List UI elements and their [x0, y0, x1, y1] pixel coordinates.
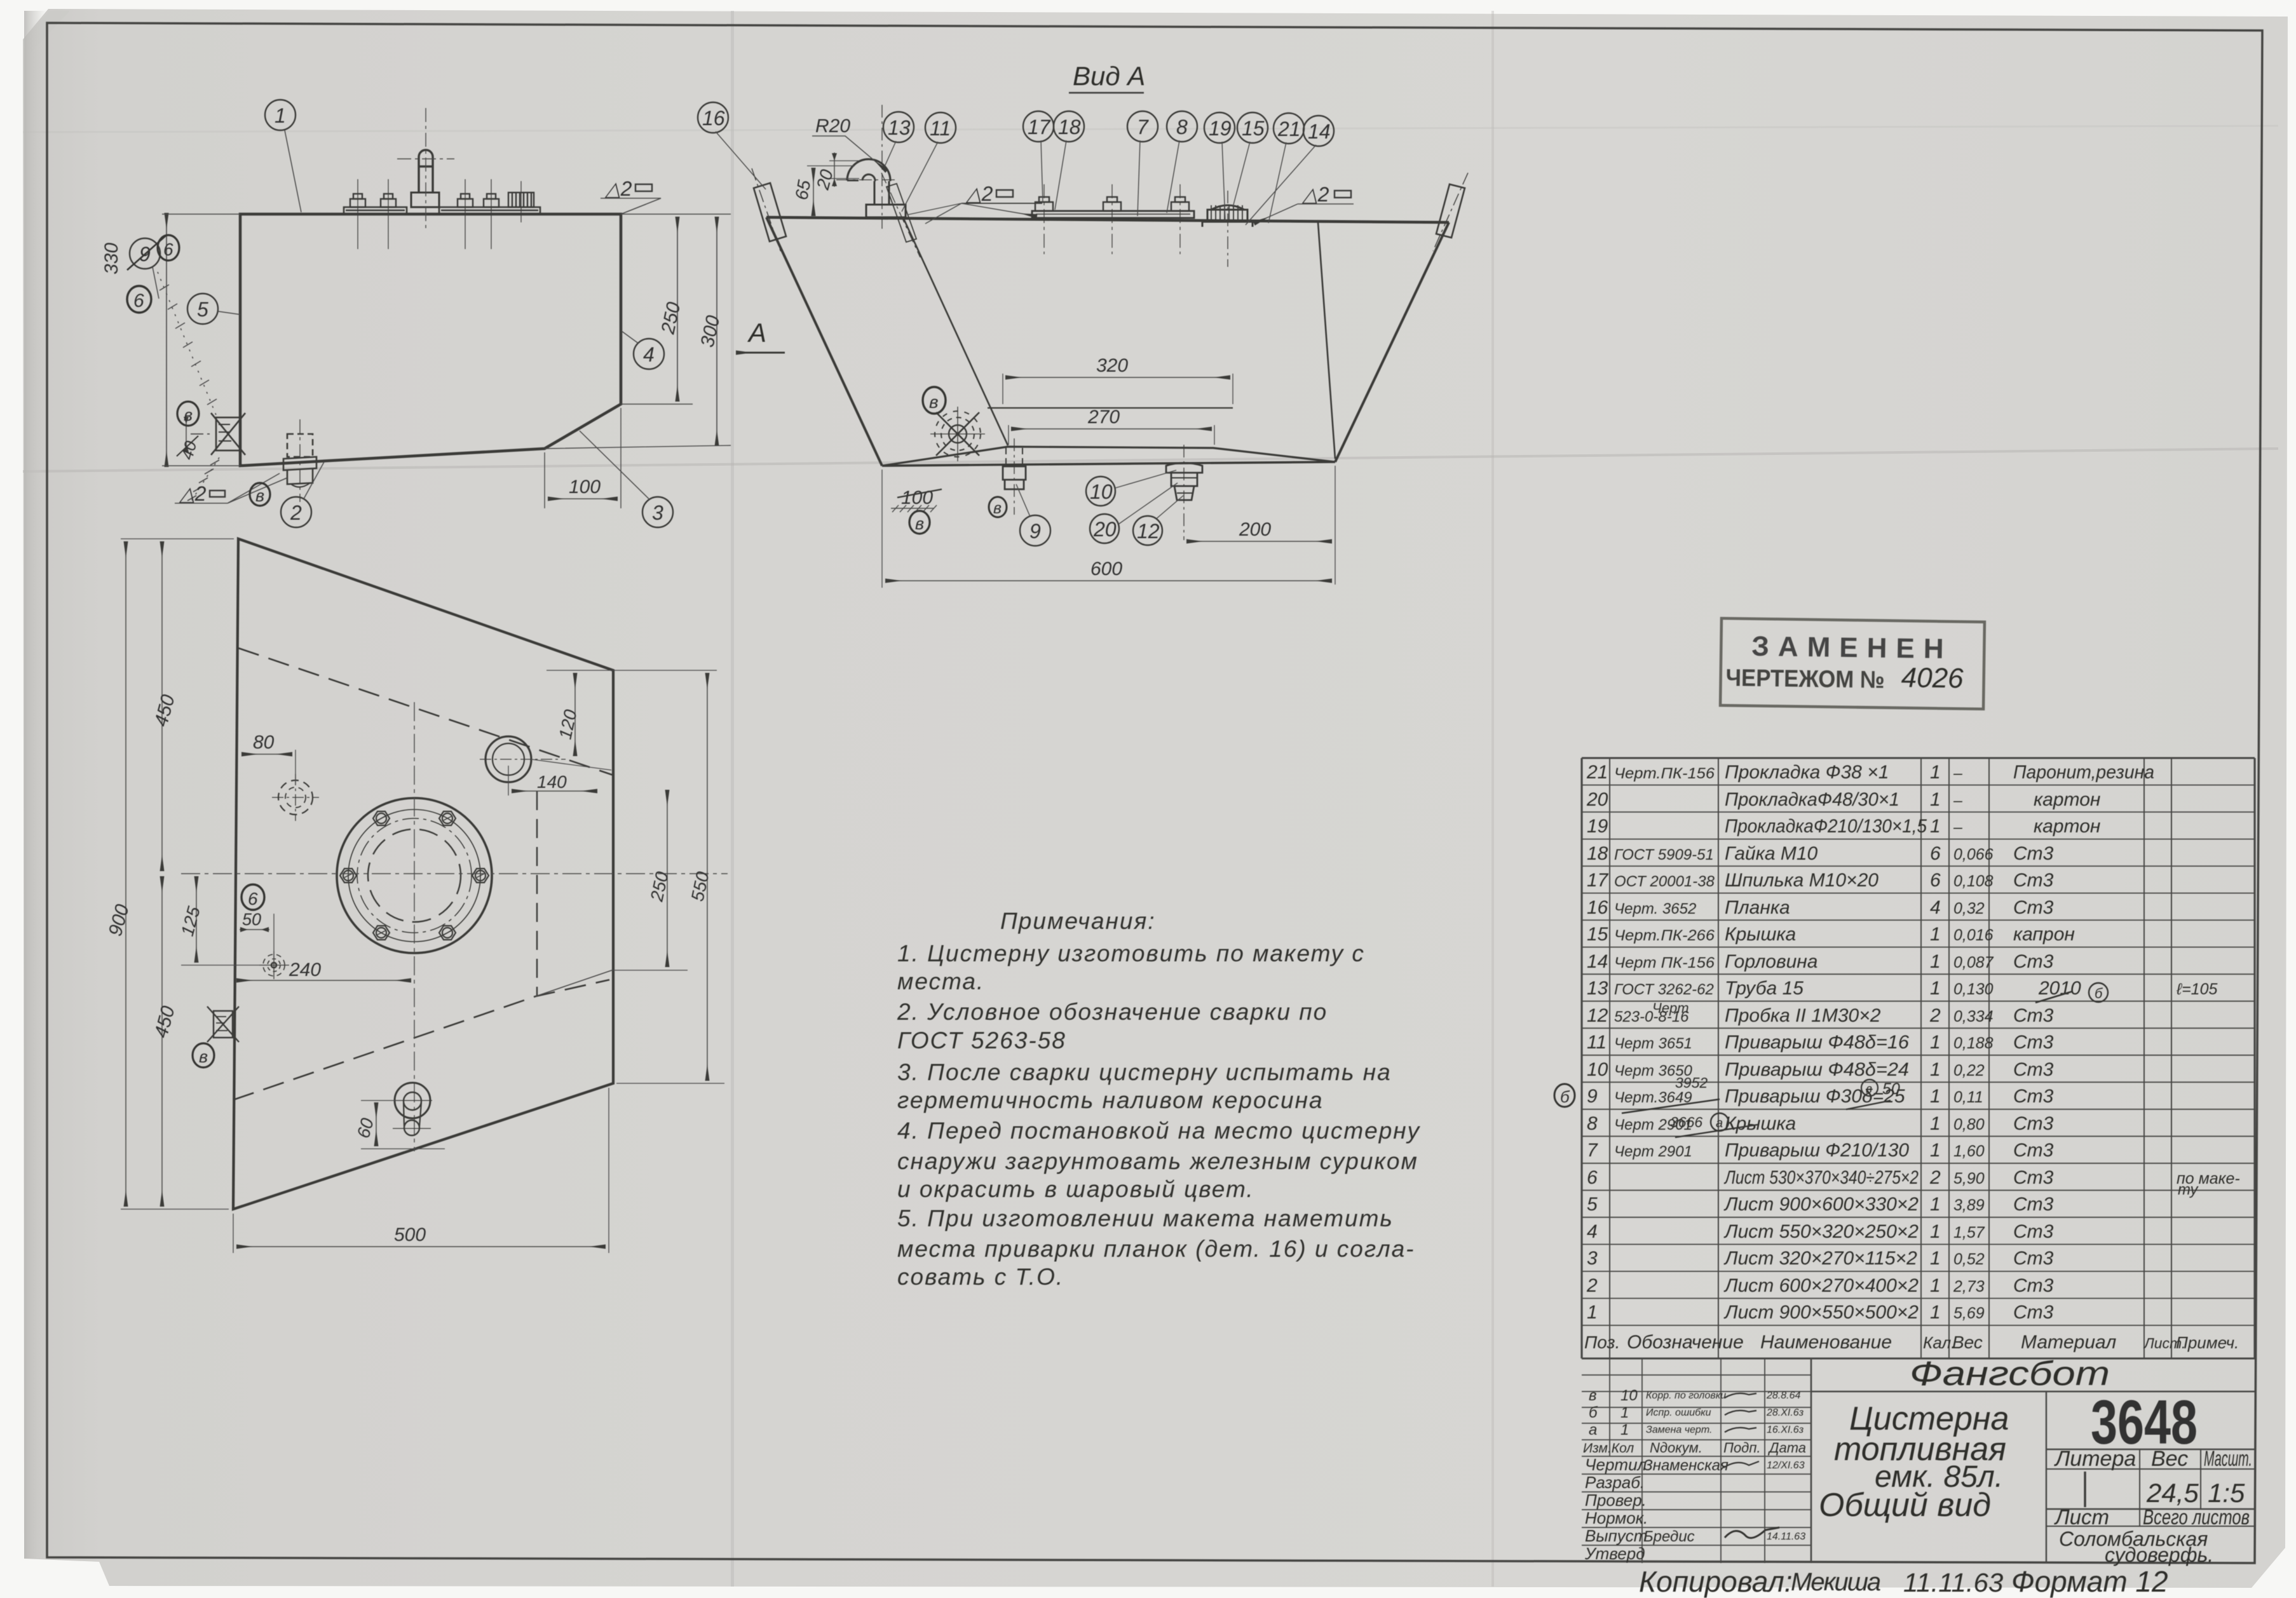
- svg-text:Ст3: Ст3: [2013, 1221, 2054, 1242]
- svg-text:△2: △2: [1301, 183, 1329, 206]
- svg-text:20: 20: [1586, 789, 1608, 810]
- svg-text:Корр. по головки: Корр. по головки: [1646, 1390, 1726, 1401]
- svg-text:Паронит,резина: Паронит,резина: [2013, 762, 2154, 783]
- svg-text:17: 17: [1028, 116, 1051, 139]
- svg-text:320: 320: [1096, 355, 1128, 376]
- svg-text:21: 21: [1586, 762, 1608, 783]
- svg-text:Лист 550×320×250×2: Лист 550×320×250×2: [1723, 1221, 1919, 1242]
- svg-text:Изм.Кол: Изм.Кол: [1583, 1441, 1634, 1456]
- svg-text:а: а: [1589, 1421, 1597, 1439]
- svg-text:Нормок.: Нормок.: [1585, 1508, 1648, 1527]
- svg-text:14.11.63: 14.11.63: [1767, 1531, 1805, 1542]
- svg-text:1: 1: [1930, 762, 1941, 783]
- svg-text:80: 80: [253, 732, 275, 753]
- svg-text:2: 2: [1929, 1005, 1941, 1026]
- svg-text:R20: R20: [815, 116, 850, 137]
- svg-text:Лист 530×370×340÷275×2: Лист 530×370×340÷275×2: [1723, 1167, 1919, 1188]
- svg-text:Испр. ошибки: Испр. ошибки: [1646, 1407, 1711, 1418]
- svg-text:Ст3: Ст3: [2013, 1167, 2054, 1188]
- svg-text:A: A: [747, 318, 766, 348]
- svg-text:1: 1: [1930, 1221, 1941, 1242]
- svg-text:10: 10: [1620, 1387, 1638, 1404]
- svg-text:7: 7: [1587, 1140, 1598, 1161]
- svg-text:Черт ПК-156: Черт ПК-156: [1614, 954, 1715, 972]
- svg-text:6: 6: [248, 889, 258, 909]
- svg-text:Пробка II 1М30×2: Пробка II 1М30×2: [1725, 1005, 1881, 1026]
- svg-text:2. Условное обозначение сварки: 2. Условное обозначение сварки по: [897, 999, 1328, 1025]
- svg-text:Всего листов: Всего листов: [2143, 1505, 2250, 1529]
- svg-text:Поз.: Поз.: [1584, 1332, 1620, 1352]
- svg-text:8: 8: [1587, 1113, 1598, 1134]
- svg-text:1: 1: [1930, 924, 1941, 945]
- svg-text:△2: △2: [965, 182, 993, 205]
- svg-text:Черт.3649: Черт.3649: [1614, 1089, 1692, 1106]
- svg-text:1: 1: [1930, 789, 1941, 810]
- svg-text:1: 1: [1930, 1140, 1941, 1161]
- svg-text:1: 1: [1930, 1032, 1941, 1053]
- svg-text:Ст3: Ст3: [2013, 897, 2054, 918]
- svg-text:Разраб.: Разраб.: [1585, 1473, 1645, 1492]
- svg-text:4026: 4026: [1901, 662, 1964, 694]
- svg-text:Бредис: Бредис: [1643, 1528, 1695, 1545]
- svg-text:Гайка М10: Гайка М10: [1725, 843, 1818, 864]
- svg-text:6: 6: [133, 290, 144, 311]
- svg-text:в: в: [1589, 1387, 1597, 1404]
- svg-text:Формат 12: Формат 12: [2011, 1565, 2168, 1598]
- svg-text:–: –: [1953, 818, 1963, 836]
- svg-text:28.XI.6з: 28.XI.6з: [1766, 1407, 1804, 1418]
- svg-text:2: 2: [1929, 1167, 1941, 1188]
- svg-text:2: 2: [1586, 1275, 1598, 1296]
- svg-text:герметичность наливом керосина: герметичность наливом керосина: [897, 1087, 1324, 1113]
- svg-text:Шпилька М10×20: Шпилька М10×20: [1725, 870, 1878, 891]
- svg-text:Лист 900×600×330×2: Лист 900×600×330×2: [1723, 1194, 1919, 1215]
- svg-text:места.: места.: [897, 968, 984, 994]
- svg-text:Масшт.: Масшт.: [2204, 1447, 2252, 1471]
- svg-text:7: 7: [1137, 116, 1149, 139]
- svg-text:Подп.: Подп.: [1723, 1440, 1761, 1456]
- svg-text:6: 6: [1930, 843, 1941, 864]
- svg-text:б: б: [2095, 985, 2103, 1001]
- svg-text:Черт.ПК-156: Черт.ПК-156: [1614, 765, 1715, 782]
- svg-text:1: 1: [1930, 978, 1941, 999]
- svg-text:50: 50: [1882, 1080, 1900, 1098]
- svg-text:12/XI.63: 12/XI.63: [1767, 1460, 1805, 1471]
- svg-text:12: 12: [1137, 520, 1160, 543]
- svg-text:11.11.63: 11.11.63: [1903, 1568, 2003, 1597]
- svg-text:Дата: Дата: [1767, 1440, 1806, 1456]
- svg-text:Черт: Черт: [1652, 1000, 1689, 1016]
- svg-text:16: 16: [702, 107, 725, 130]
- svg-text:Общий вид: Общий вид: [1819, 1487, 1991, 1524]
- svg-text:Приварыш Ф210/130: Приварыш Ф210/130: [1725, 1140, 1909, 1161]
- svg-text:1: 1: [1930, 1113, 1941, 1134]
- svg-text:Наименование: Наименование: [1760, 1332, 1892, 1353]
- svg-text:1: 1: [1930, 951, 1941, 972]
- svg-text:140: 140: [537, 772, 567, 792]
- svg-text:в: в: [993, 499, 1002, 517]
- svg-text:8: 8: [1176, 116, 1188, 139]
- svg-text:270: 270: [1087, 407, 1120, 428]
- svg-text:Выпуст: Выпуст: [1585, 1526, 1647, 1545]
- svg-text:13: 13: [888, 116, 911, 139]
- svg-text:Ст3: Ст3: [2013, 1113, 2054, 1134]
- svg-text:1: 1: [275, 104, 286, 127]
- svg-text:Утверд: Утверд: [1584, 1544, 1645, 1563]
- svg-text:Ст3: Ст3: [2013, 843, 2054, 864]
- svg-text:500: 500: [394, 1224, 426, 1245]
- svg-text:Черт 3651: Черт 3651: [1614, 1035, 1692, 1052]
- svg-text:1,60: 1,60: [1953, 1142, 1985, 1160]
- svg-text:11: 11: [1587, 1032, 1607, 1053]
- svg-text:Ст3: Ст3: [2013, 1248, 2054, 1269]
- svg-text:4: 4: [643, 343, 655, 366]
- svg-text:0,087: 0,087: [1953, 954, 1994, 972]
- svg-text:5,69: 5,69: [1953, 1304, 1985, 1322]
- svg-text:Примеч.: Примеч.: [2176, 1333, 2239, 1352]
- svg-text:б: б: [1589, 1404, 1598, 1421]
- svg-text:14: 14: [1587, 951, 1608, 972]
- svg-text:б: б: [1560, 1087, 1570, 1106]
- svg-text:Лист 320×270×115×2: Лист 320×270×115×2: [1723, 1248, 1917, 1269]
- svg-text:4: 4: [1930, 897, 1941, 918]
- svg-text:16.XI.6з: 16.XI.6з: [1767, 1425, 1804, 1435]
- svg-text:15: 15: [1242, 117, 1265, 140]
- svg-text:Замена черт.: Замена черт.: [1646, 1425, 1712, 1435]
- svg-text:ℓ=105: ℓ=105: [2176, 980, 2217, 998]
- svg-text:△2: △2: [604, 177, 632, 200]
- svg-text:Ст3: Ст3: [2013, 870, 2054, 891]
- svg-text:капрон: капрон: [2013, 924, 2075, 945]
- svg-text:Приварыш Ф48δ=16: Приварыш Ф48δ=16: [1725, 1032, 1909, 1053]
- svg-text:места приварки планок (дет. 16: места приварки планок (дет. 16) и согла-: [897, 1236, 1415, 1262]
- svg-text:ПрокладкаФ48/30×1: ПрокладкаФ48/30×1: [1725, 789, 1899, 810]
- svg-text:1: 1: [1930, 1194, 1941, 1215]
- svg-text:картон: картон: [2034, 816, 2100, 837]
- svg-text:0,80: 0,80: [1953, 1116, 1985, 1134]
- svg-text:0,066: 0,066: [1953, 846, 1994, 863]
- svg-text:Nдокум.: Nдокум.: [1650, 1440, 1702, 1456]
- svg-text:6: 6: [1587, 1167, 1598, 1188]
- svg-text:3952: 3952: [1675, 1074, 1708, 1091]
- svg-text:судоверфь.: судоверфь.: [2105, 1543, 2213, 1566]
- svg-text:2,73: 2,73: [1953, 1278, 1985, 1296]
- svg-text:Фангсбот: Фангсбот: [1910, 1355, 2110, 1393]
- svg-text:Вес: Вес: [1952, 1332, 1983, 1352]
- svg-text:в: в: [199, 1047, 208, 1066]
- svg-text:24,5: 24,5: [2146, 1478, 2199, 1508]
- svg-text:330: 330: [101, 243, 122, 274]
- svg-text:Вид А: Вид А: [1073, 61, 1145, 91]
- svg-text:3: 3: [652, 501, 663, 524]
- svg-text:6: 6: [163, 240, 173, 259]
- svg-text:△2: △2: [179, 482, 207, 505]
- svg-text:12: 12: [1587, 1005, 1608, 1026]
- svg-text:снаружи загрунтовать железным: снаружи загрунтовать железным суриком: [897, 1148, 1418, 1174]
- svg-text:21: 21: [1277, 118, 1301, 140]
- svg-text:14: 14: [1308, 120, 1331, 143]
- svg-text:картон: картон: [2034, 789, 2100, 810]
- svg-text:1: 1: [1620, 1404, 1629, 1421]
- svg-text:Черт 2901: Черт 2901: [1614, 1143, 1692, 1160]
- svg-text:5,90: 5,90: [1953, 1170, 1985, 1188]
- svg-text:13: 13: [1587, 978, 1608, 999]
- svg-text:11: 11: [930, 117, 951, 140]
- svg-text:200: 200: [1239, 519, 1271, 540]
- svg-text:Лист 600×270×400×2: Лист 600×270×400×2: [1723, 1275, 1919, 1296]
- svg-text:Ст3: Ст3: [2013, 951, 2054, 972]
- svg-text:в: в: [929, 392, 939, 412]
- svg-text:Обозначение: Обозначение: [1627, 1332, 1744, 1353]
- svg-text:Планка: Планка: [1725, 897, 1790, 918]
- svg-text:100: 100: [569, 477, 601, 498]
- svg-text:50: 50: [242, 910, 261, 929]
- svg-text:Крышка: Крышка: [1725, 1113, 1796, 1134]
- svg-text:9: 9: [1587, 1086, 1598, 1107]
- svg-text:ГОСТ 5263-58: ГОСТ 5263-58: [897, 1027, 1066, 1053]
- svg-text:а: а: [1716, 1116, 1723, 1130]
- svg-text:Чертил: Чертил: [1585, 1455, 1647, 1474]
- svg-text:в: в: [255, 486, 264, 505]
- svg-text:–: –: [1953, 764, 1963, 782]
- svg-text:10: 10: [1090, 480, 1113, 503]
- svg-text:0,11: 0,11: [1953, 1088, 1983, 1106]
- svg-text:1: 1: [1587, 1302, 1598, 1323]
- svg-text:3666: 3666: [1670, 1114, 1702, 1130]
- svg-text:6: 6: [1930, 870, 1941, 891]
- svg-text:9: 9: [1029, 520, 1041, 543]
- svg-text:Мекиша: Мекиша: [1791, 1568, 1880, 1596]
- svg-text:18: 18: [1587, 843, 1608, 864]
- svg-text:ПрокладкаФ210/130×1,5: ПрокладкаФ210/130×1,5: [1725, 816, 1927, 837]
- svg-text:17: 17: [1587, 870, 1609, 891]
- svg-text:Черт. 3652: Черт. 3652: [1614, 900, 1696, 917]
- svg-text:Ст3: Ст3: [2013, 1275, 2054, 1296]
- svg-text:совать с Т.О.: совать с Т.О.: [897, 1264, 1064, 1290]
- svg-text:2: 2: [290, 501, 302, 524]
- svg-text:600: 600: [1090, 559, 1122, 579]
- svg-text:Кал.: Кал.: [1923, 1333, 1955, 1352]
- svg-text:0,32: 0,32: [1953, 900, 1985, 917]
- svg-text:0,108: 0,108: [1953, 872, 1994, 890]
- svg-text:–: –: [1953, 792, 1963, 809]
- svg-text:Ст3: Ст3: [2013, 1302, 2054, 1323]
- svg-text:Труба 15: Труба 15: [1725, 978, 1804, 999]
- svg-text:Ст3: Ст3: [2013, 1059, 2054, 1080]
- svg-text:ту: ту: [2178, 1181, 2199, 1198]
- svg-text:5. При изготовлении макета нам: 5. При изготовлении макета наметить: [897, 1205, 1394, 1231]
- svg-text:Крышка: Крышка: [1725, 924, 1796, 945]
- svg-text:1: 1: [1620, 1421, 1629, 1439]
- svg-text:Ст3: Ст3: [2013, 1032, 2054, 1053]
- svg-text:Примечания:: Примечания:: [1000, 908, 1156, 934]
- svg-text:Черт.ПК-266: Черт.ПК-266: [1614, 927, 1715, 944]
- svg-text:Лист 900×550×500×2: Лист 900×550×500×2: [1723, 1302, 1919, 1323]
- svg-text:в: в: [915, 514, 924, 533]
- svg-text:1,57: 1,57: [1953, 1224, 1985, 1242]
- svg-text:Вес: Вес: [2151, 1447, 2188, 1471]
- svg-text:Лист: Лист: [2054, 1505, 2109, 1529]
- svg-text:ОСТ 20001-38: ОСТ 20001-38: [1614, 873, 1715, 890]
- svg-text:1: 1: [1930, 1302, 1941, 1323]
- svg-text:1: 1: [1930, 1086, 1941, 1107]
- svg-text:Прокладка Ф38 ×1: Прокладка Ф38 ×1: [1725, 762, 1889, 783]
- svg-text:в: в: [1866, 1083, 1872, 1096]
- svg-text:Горловина: Горловина: [1725, 951, 1817, 972]
- svg-text:ГОСТ 5909-51: ГОСТ 5909-51: [1614, 846, 1714, 863]
- svg-text:1. Цистерну изготовить по маке: 1. Цистерну изготовить по макету с: [897, 940, 1365, 966]
- svg-text:0,22: 0,22: [1953, 1062, 1985, 1080]
- svg-text:5: 5: [197, 298, 208, 321]
- svg-text:1: 1: [1930, 1248, 1941, 1269]
- svg-text:28.8.64: 28.8.64: [1766, 1390, 1800, 1401]
- svg-text:в: в: [184, 405, 193, 424]
- svg-text:0,52: 0,52: [1953, 1250, 1985, 1268]
- svg-text:Копировал:: Копировал:: [1639, 1565, 1793, 1598]
- svg-text:1:5: 1:5: [2208, 1478, 2245, 1508]
- svg-text:Провер.: Провер.: [1585, 1491, 1647, 1510]
- svg-text:ЗАМЕНЕН: ЗАМЕНЕН: [1751, 631, 1953, 665]
- svg-text:3,89: 3,89: [1953, 1196, 1985, 1214]
- svg-text:20: 20: [1093, 518, 1117, 541]
- svg-text:16: 16: [1587, 897, 1608, 918]
- svg-text:4. Перед постановкой на место: 4. Перед постановкой на место цистерну: [897, 1118, 1421, 1144]
- svg-text:18: 18: [1058, 116, 1081, 139]
- svg-text:19: 19: [1209, 117, 1232, 140]
- svg-text:4: 4: [1587, 1221, 1598, 1242]
- svg-text:1: 1: [1930, 1275, 1941, 1296]
- svg-text:1: 1: [1930, 816, 1941, 837]
- svg-text:15: 15: [1587, 924, 1608, 945]
- svg-text:65: 65: [791, 179, 814, 201]
- svg-text:10: 10: [1587, 1059, 1608, 1080]
- svg-text:0,130: 0,130: [1953, 980, 1994, 998]
- svg-text:Ст3: Ст3: [2013, 1194, 2054, 1215]
- svg-text:Ст3: Ст3: [2013, 1086, 2054, 1107]
- svg-text:Материал: Материал: [2021, 1332, 2116, 1353]
- svg-text:5: 5: [1587, 1194, 1598, 1215]
- svg-text:0,016: 0,016: [1953, 926, 1994, 944]
- svg-text:1: 1: [1930, 1059, 1941, 1080]
- svg-text:240: 240: [289, 959, 321, 980]
- svg-text:Литера: Литера: [2054, 1447, 2136, 1471]
- svg-text:19: 19: [1587, 816, 1608, 837]
- svg-text:Приварыш Ф48δ=24: Приварыш Ф48δ=24: [1725, 1059, 1909, 1080]
- svg-text:0,334: 0,334: [1953, 1008, 1994, 1026]
- svg-text:и окрасить в шаровый цвет.: и окрасить в шаровый цвет.: [897, 1176, 1254, 1202]
- svg-text:ЧЕРТЕЖОМ №: ЧЕРТЕЖОМ №: [1725, 665, 1885, 693]
- svg-text:Ст3: Ст3: [2013, 1005, 2054, 1026]
- svg-text:3: 3: [1587, 1248, 1598, 1269]
- svg-text:ГОСТ 3262-62: ГОСТ 3262-62: [1614, 981, 1714, 998]
- svg-text:0,188: 0,188: [1953, 1034, 1994, 1052]
- svg-text:3. После сварки цистерну испыт: 3. После сварки цистерну испытать на: [897, 1059, 1392, 1085]
- svg-text:Знаменская: Знаменская: [1643, 1457, 1729, 1474]
- svg-text:Ст3: Ст3: [2013, 1140, 2054, 1161]
